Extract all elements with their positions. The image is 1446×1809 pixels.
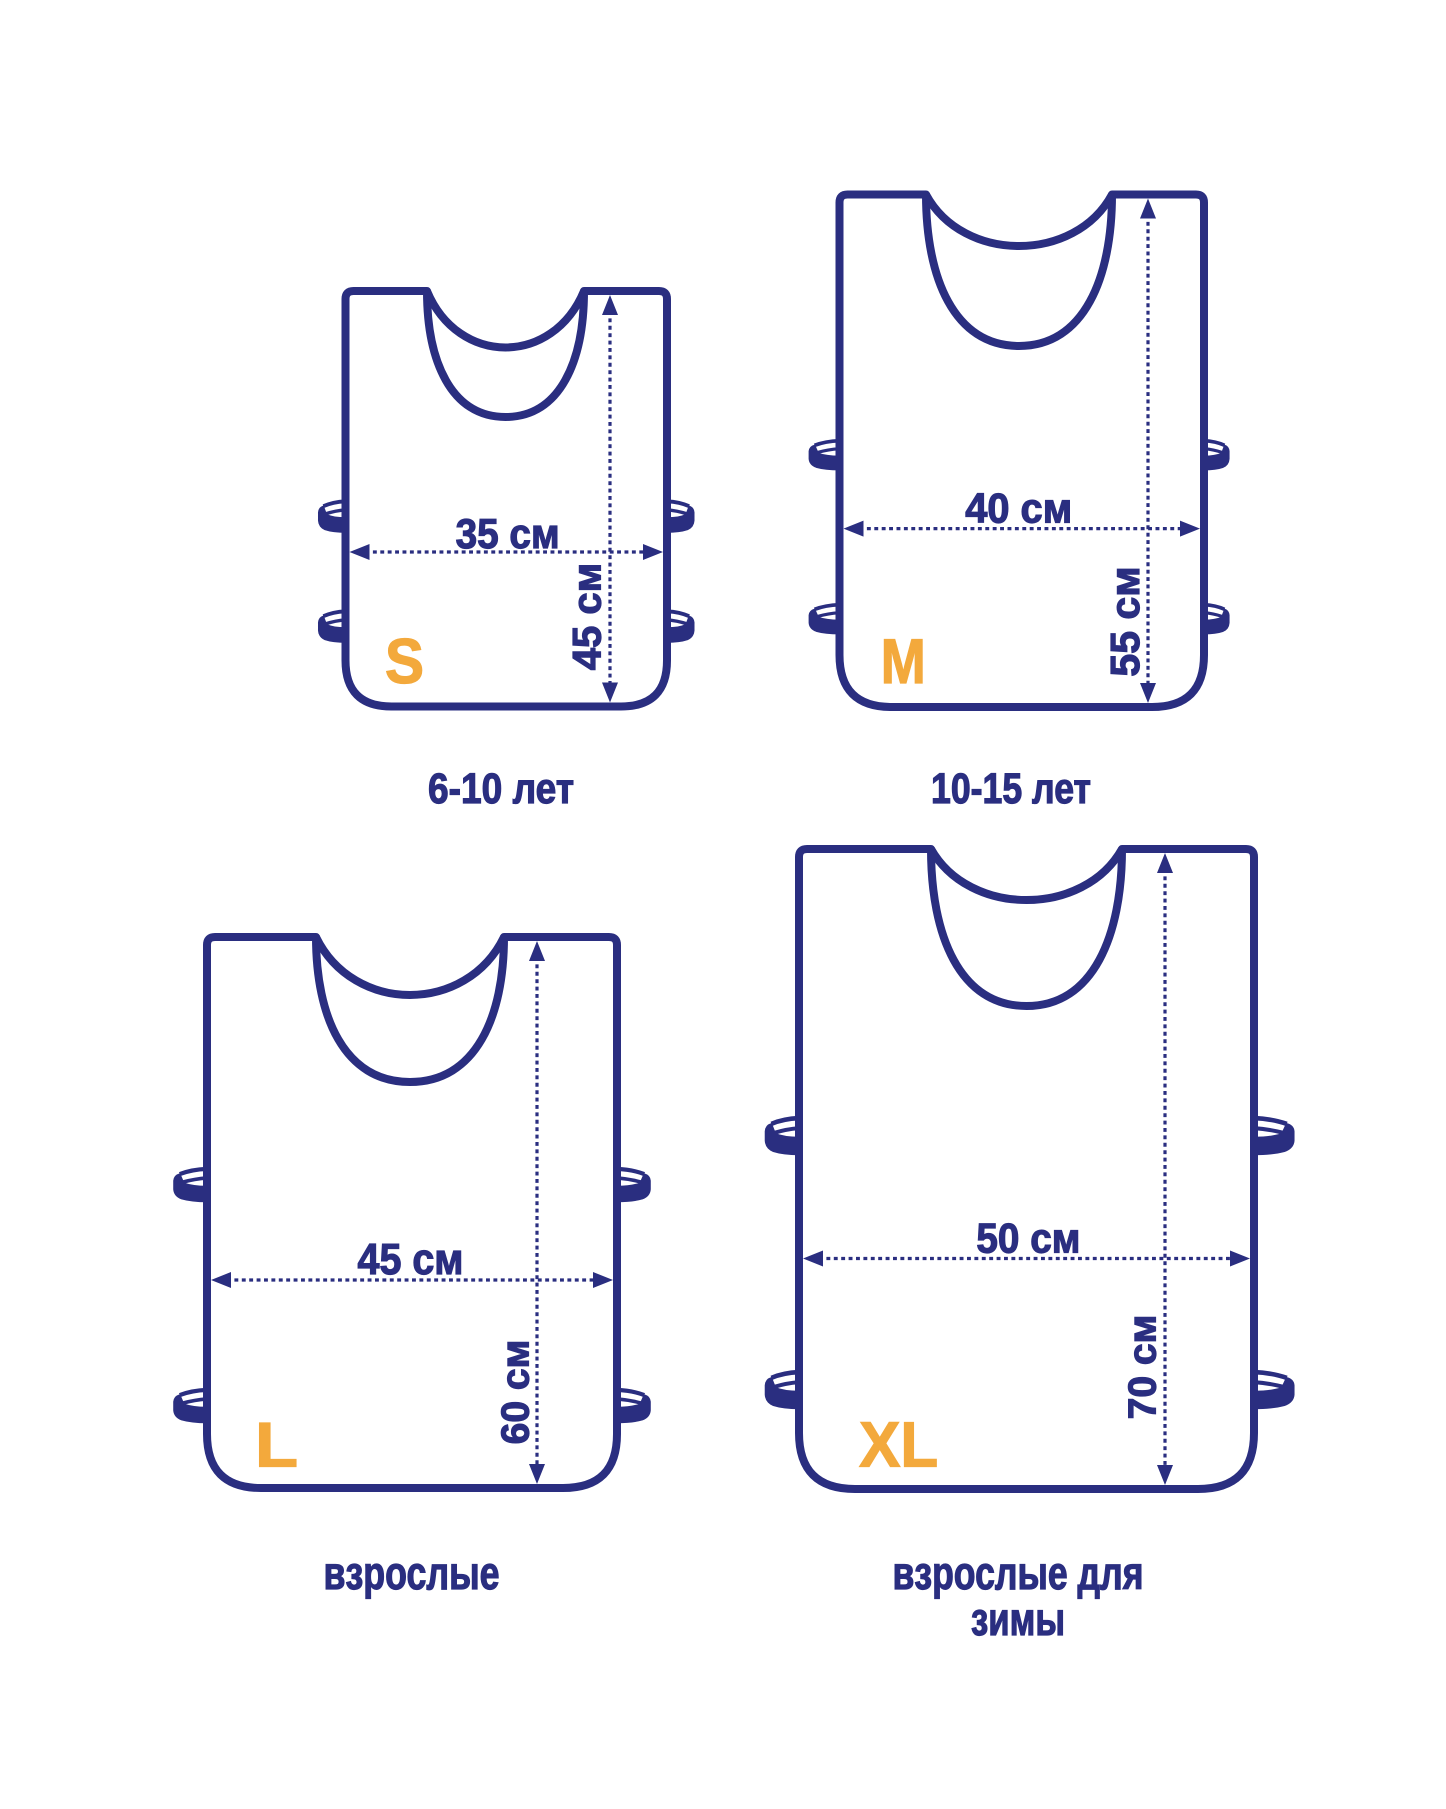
svg-text:45 см: 45 см	[566, 563, 610, 670]
svg-text:40 см: 40 см	[965, 484, 1072, 531]
svg-text:XL: XL	[859, 1409, 938, 1481]
svg-text:50 см: 50 см	[976, 1215, 1080, 1262]
svg-text:взрослые для: взрослые для	[893, 1547, 1144, 1599]
svg-text:45 см: 45 см	[358, 1235, 464, 1284]
svg-text:взрослые: взрослые	[324, 1547, 500, 1599]
svg-text:зимы: зимы	[971, 1593, 1065, 1645]
svg-text:M: M	[881, 627, 926, 697]
svg-text:35 см: 35 см	[456, 510, 560, 557]
svg-text:60 см: 60 см	[495, 1340, 538, 1445]
svg-text:L: L	[255, 1411, 298, 1481]
svg-text:6-10 лет: 6-10 лет	[428, 765, 574, 813]
svg-text:S: S	[385, 627, 424, 697]
svg-text:55 см: 55 см	[1102, 566, 1148, 676]
svg-text:70 см: 70 см	[1121, 1315, 1164, 1420]
svg-text:10-15 лет: 10-15 лет	[931, 765, 1091, 813]
